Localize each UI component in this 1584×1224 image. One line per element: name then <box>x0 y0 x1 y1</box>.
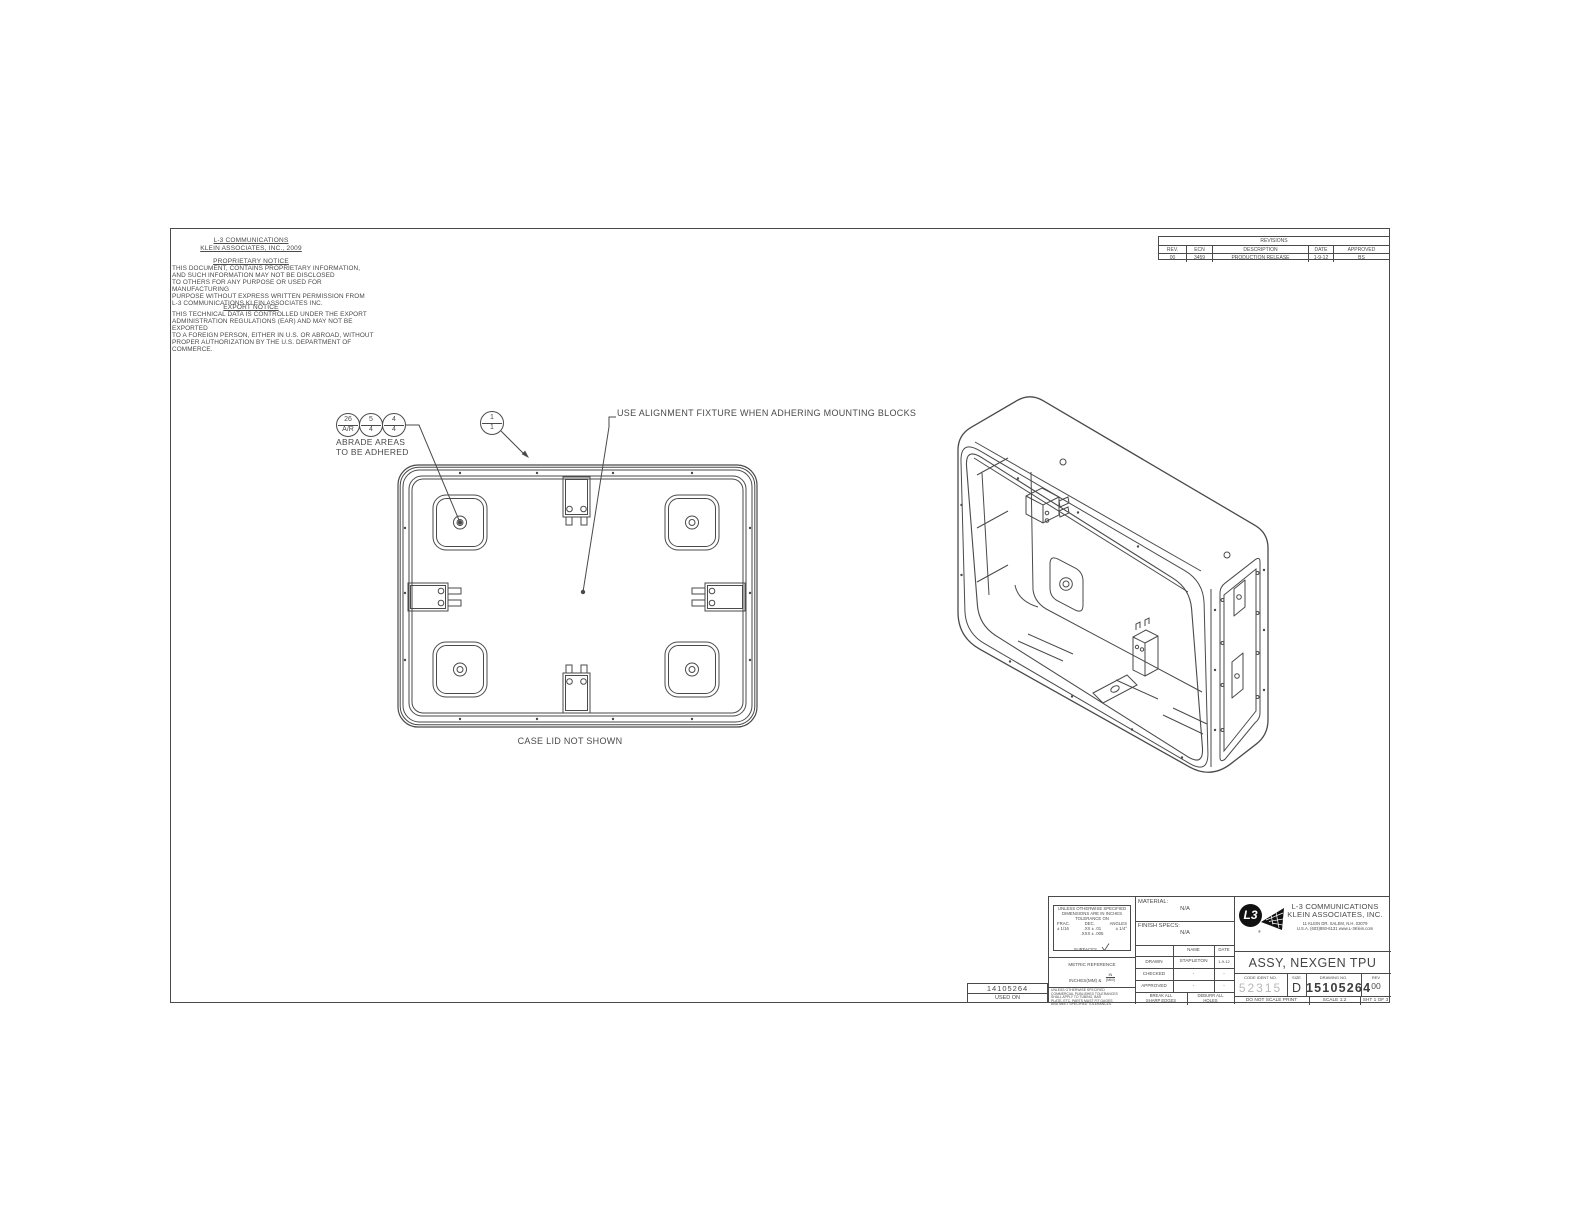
edge-notes-band: BREAK ALL SHARP EDGES DEBURR ALL HOLES <box>1135 992 1234 1004</box>
metric-reference-line1: METRIC REFERENCE <box>1049 962 1135 967</box>
revisions-header-ecn: ECN <box>1187 246 1213 254</box>
do-not-scale-note: DO NOT SCALE PRINT <box>1234 998 1309 1003</box>
size-value: D <box>1287 981 1306 995</box>
deburr-note: DEBURR ALL HOLES <box>1187 994 1234 1003</box>
engineering-drawing-page: L-3 COMMUNICATIONS KLEIN ASSOCIATES, INC… <box>0 0 1584 1224</box>
balloon-bottom-value: 4 <box>360 425 382 436</box>
balloon-26-ar: 26 A/R <box>336 413 360 437</box>
finish-specs-cell: FINISH SPECS: N/A <box>1136 921 1234 945</box>
export-notice-heading: EXPORT NOTICE <box>176 304 326 311</box>
l3-logo: L3 <box>1239 904 1262 927</box>
surfaces-label: SURFACES <box>1074 947 1097 952</box>
finish-specs-label: FINISH SPECS: <box>1136 921 1234 930</box>
isometric-view-svg <box>930 385 1280 800</box>
plan-view-svg <box>385 405 775 738</box>
revisions-table: REVISIONS REV. ECN DESCRIPTION DATE APPR… <box>1158 236 1390 260</box>
angles-value: ± 1/4° <box>1116 927 1127 932</box>
plan-view <box>385 405 775 738</box>
date-header: DATE <box>1214 948 1234 953</box>
drawing-no-value: 15105264 <box>1306 981 1361 995</box>
revision-date: 1-9-12 <box>1309 254 1334 262</box>
metric-reference-line2: INCHES(MM) & IN (MM) <box>1049 969 1135 987</box>
balloon-bottom-value: A/R <box>337 425 359 436</box>
drawing-no-label: DRAWING NO. <box>1306 975 1361 980</box>
fraction-denominator: (MM) <box>1106 977 1115 982</box>
revisions-data-row: 00 3459 PRODUCTION RELEASE 1-9-12 BS <box>1159 254 1389 262</box>
checked-label: CHECKED <box>1135 971 1173 976</box>
drawing-title: ASSY, NEXGEN TPU <box>1234 951 1391 973</box>
balloon-top-value: 26 <box>337 414 359 425</box>
material-label: MATERIAL: <box>1136 897 1234 906</box>
balloon-5-4: 5 4 <box>359 413 383 437</box>
surfaces-row: SURFACES <box>1054 938 1130 956</box>
material-cell: MATERIAL: N/A <box>1136 897 1234 921</box>
application-block: 14105264 USED ON <box>967 983 1048 1003</box>
mounting-pads <box>433 495 719 697</box>
drawn-label: DRAWN <box>1135 959 1173 964</box>
sheet-note: SHT 1 OF 3 <box>1360 998 1391 1003</box>
revision-description: PRODUCTION RELEASE <box>1213 254 1309 262</box>
export-notice-body: THIS TECHNICAL DATA IS CONTROLLED UNDER … <box>172 312 382 353</box>
revisions-title: REVISIONS <box>1159 237 1389 246</box>
frac-value: ± 1/16 <box>1057 927 1069 932</box>
name-header: NAME <box>1173 948 1214 953</box>
surface-finish-icon <box>1101 943 1110 951</box>
commercial-note-box: UNLESS OTHERWISE SPECIFIED COMMERCIAL PU… <box>1049 987 1135 1004</box>
iso-rivet-dots <box>960 477 1265 758</box>
approved-date: - <box>1214 983 1234 988</box>
iso-case-shell <box>958 397 1268 772</box>
drawn-name: STAPLETON <box>1173 959 1214 964</box>
mounting-blocks <box>408 477 745 713</box>
revisions-header-date: DATE <box>1309 246 1334 254</box>
revisions-header-rev: REV. <box>1159 246 1187 254</box>
revision-ecn: 3459 <box>1187 254 1213 262</box>
break-edges-note: BREAK ALL SHARP EDGES <box>1135 994 1187 1003</box>
finish-specs-value: N/A <box>1136 930 1234 937</box>
numbers-row: CODE IDENT NO. 52315 SIZE D DRAWING NO. … <box>1234 973 1391 996</box>
commercial-note: UNLESS OTHERWISE SPECIFIED COMMERCIAL PU… <box>1049 988 1135 1007</box>
rivet-dots <box>404 472 751 720</box>
drawn-date: 1-9-12 <box>1214 959 1234 964</box>
checked-date: - <box>1214 971 1234 976</box>
isometric-view <box>930 385 1280 800</box>
used-on-part-number: 14105264 <box>967 983 1048 994</box>
revision-approved: BS <box>1334 254 1389 262</box>
divider <box>1135 956 1234 957</box>
title-block: UNLESS OTHERWISE SPECIFIED DIMENSIONS AR… <box>1048 896 1390 1003</box>
revisions-header-description: DESCRIPTION <box>1213 246 1309 254</box>
metric-reference-units: INCHES(MM) & <box>1069 978 1101 983</box>
revision-rev: 00 <box>1159 254 1187 262</box>
copyright-company-line1: L-3 COMMUNICATIONS <box>176 237 326 244</box>
divider <box>1135 968 1234 969</box>
copyright-company-line2: KLEIN ASSOCIATES, INC., 2009 <box>176 245 326 252</box>
proprietary-notice-body: THIS DOCUMENT, CONTAINS PROPRIETARY INFO… <box>172 266 372 307</box>
dec-value-xxx: .XXX ± .005 <box>1054 932 1130 937</box>
registered-mark: ® <box>1258 929 1261 934</box>
revisions-header-row: REV. ECN DESCRIPTION DATE APPROVED <box>1159 246 1389 254</box>
tolerance-header: UNLESS OTHERWISE SPECIFIED DIMENSIONS AR… <box>1054 906 1130 921</box>
code-ident-label: CODE IDENT NO. <box>1234 975 1287 980</box>
code-ident-value: 52315 <box>1234 981 1287 995</box>
material-value: N/A <box>1136 906 1234 913</box>
rev-label: REV <box>1361 975 1391 980</box>
divider <box>1135 980 1234 981</box>
revisions-header-approved: APPROVED <box>1334 246 1389 254</box>
company-cell: L3 ® L-3 COMMUNICATIONS KLEIN ASSOCIATES… <box>1234 897 1391 951</box>
signoff-table: NAME DATE DRAWN STAPLETON 1-9-12 CHECKED… <box>1135 945 1234 992</box>
used-on-label: USED ON <box>967 994 1048 1003</box>
company-address-line2: U.S.A. (603)893-6131 www.L-3Klein.com <box>1282 927 1388 932</box>
tolerance-box: UNLESS OTHERWISE SPECIFIED DIMENSIONS AR… <box>1053 905 1131 951</box>
size-label: SIZE <box>1287 975 1306 980</box>
metric-reference-fraction: IN (MM) <box>1106 973 1115 982</box>
iso-end-panel <box>1220 558 1260 760</box>
scale-note: SCALE 1:2 <box>1309 998 1360 1003</box>
metric-reference-box: METRIC REFERENCE INCHES(MM) & IN (MM) <box>1049 957 1135 987</box>
checked-name: - <box>1173 971 1214 976</box>
balloon-top-value: 5 <box>360 414 382 425</box>
approved-label: APPROVED <box>1135 983 1173 988</box>
scale-row: DO NOT SCALE PRINT SCALE 1:2 SHT 1 OF 3 <box>1234 996 1391 1004</box>
iso-interior <box>974 458 1230 734</box>
company-name-block: L-3 COMMUNICATIONS KLEIN ASSOCIATES, INC… <box>1282 903 1388 931</box>
leader-lines <box>406 417 616 594</box>
company-name-line2: KLEIN ASSOCIATES, INC. <box>1282 911 1388 919</box>
rev-value: 00 <box>1361 981 1391 991</box>
approved-name: - <box>1173 983 1214 988</box>
proprietary-notice-heading: PROPRIETARY NOTICE <box>176 258 326 265</box>
